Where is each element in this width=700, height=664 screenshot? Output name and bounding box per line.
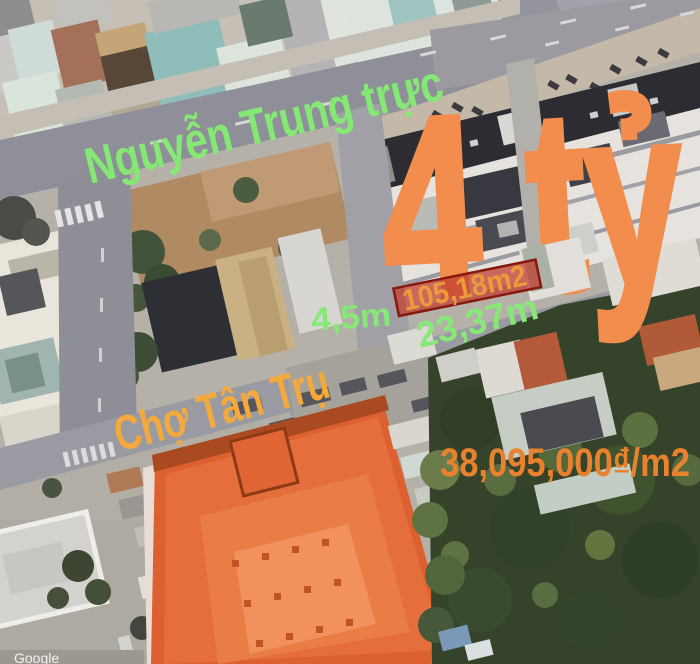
svg-text:4,5m: 4,5m [310, 295, 392, 337]
svg-text:38,095,000₫/m2: 38,095,000₫/m2 [440, 441, 690, 485]
svg-text:Google: Google [14, 650, 59, 664]
